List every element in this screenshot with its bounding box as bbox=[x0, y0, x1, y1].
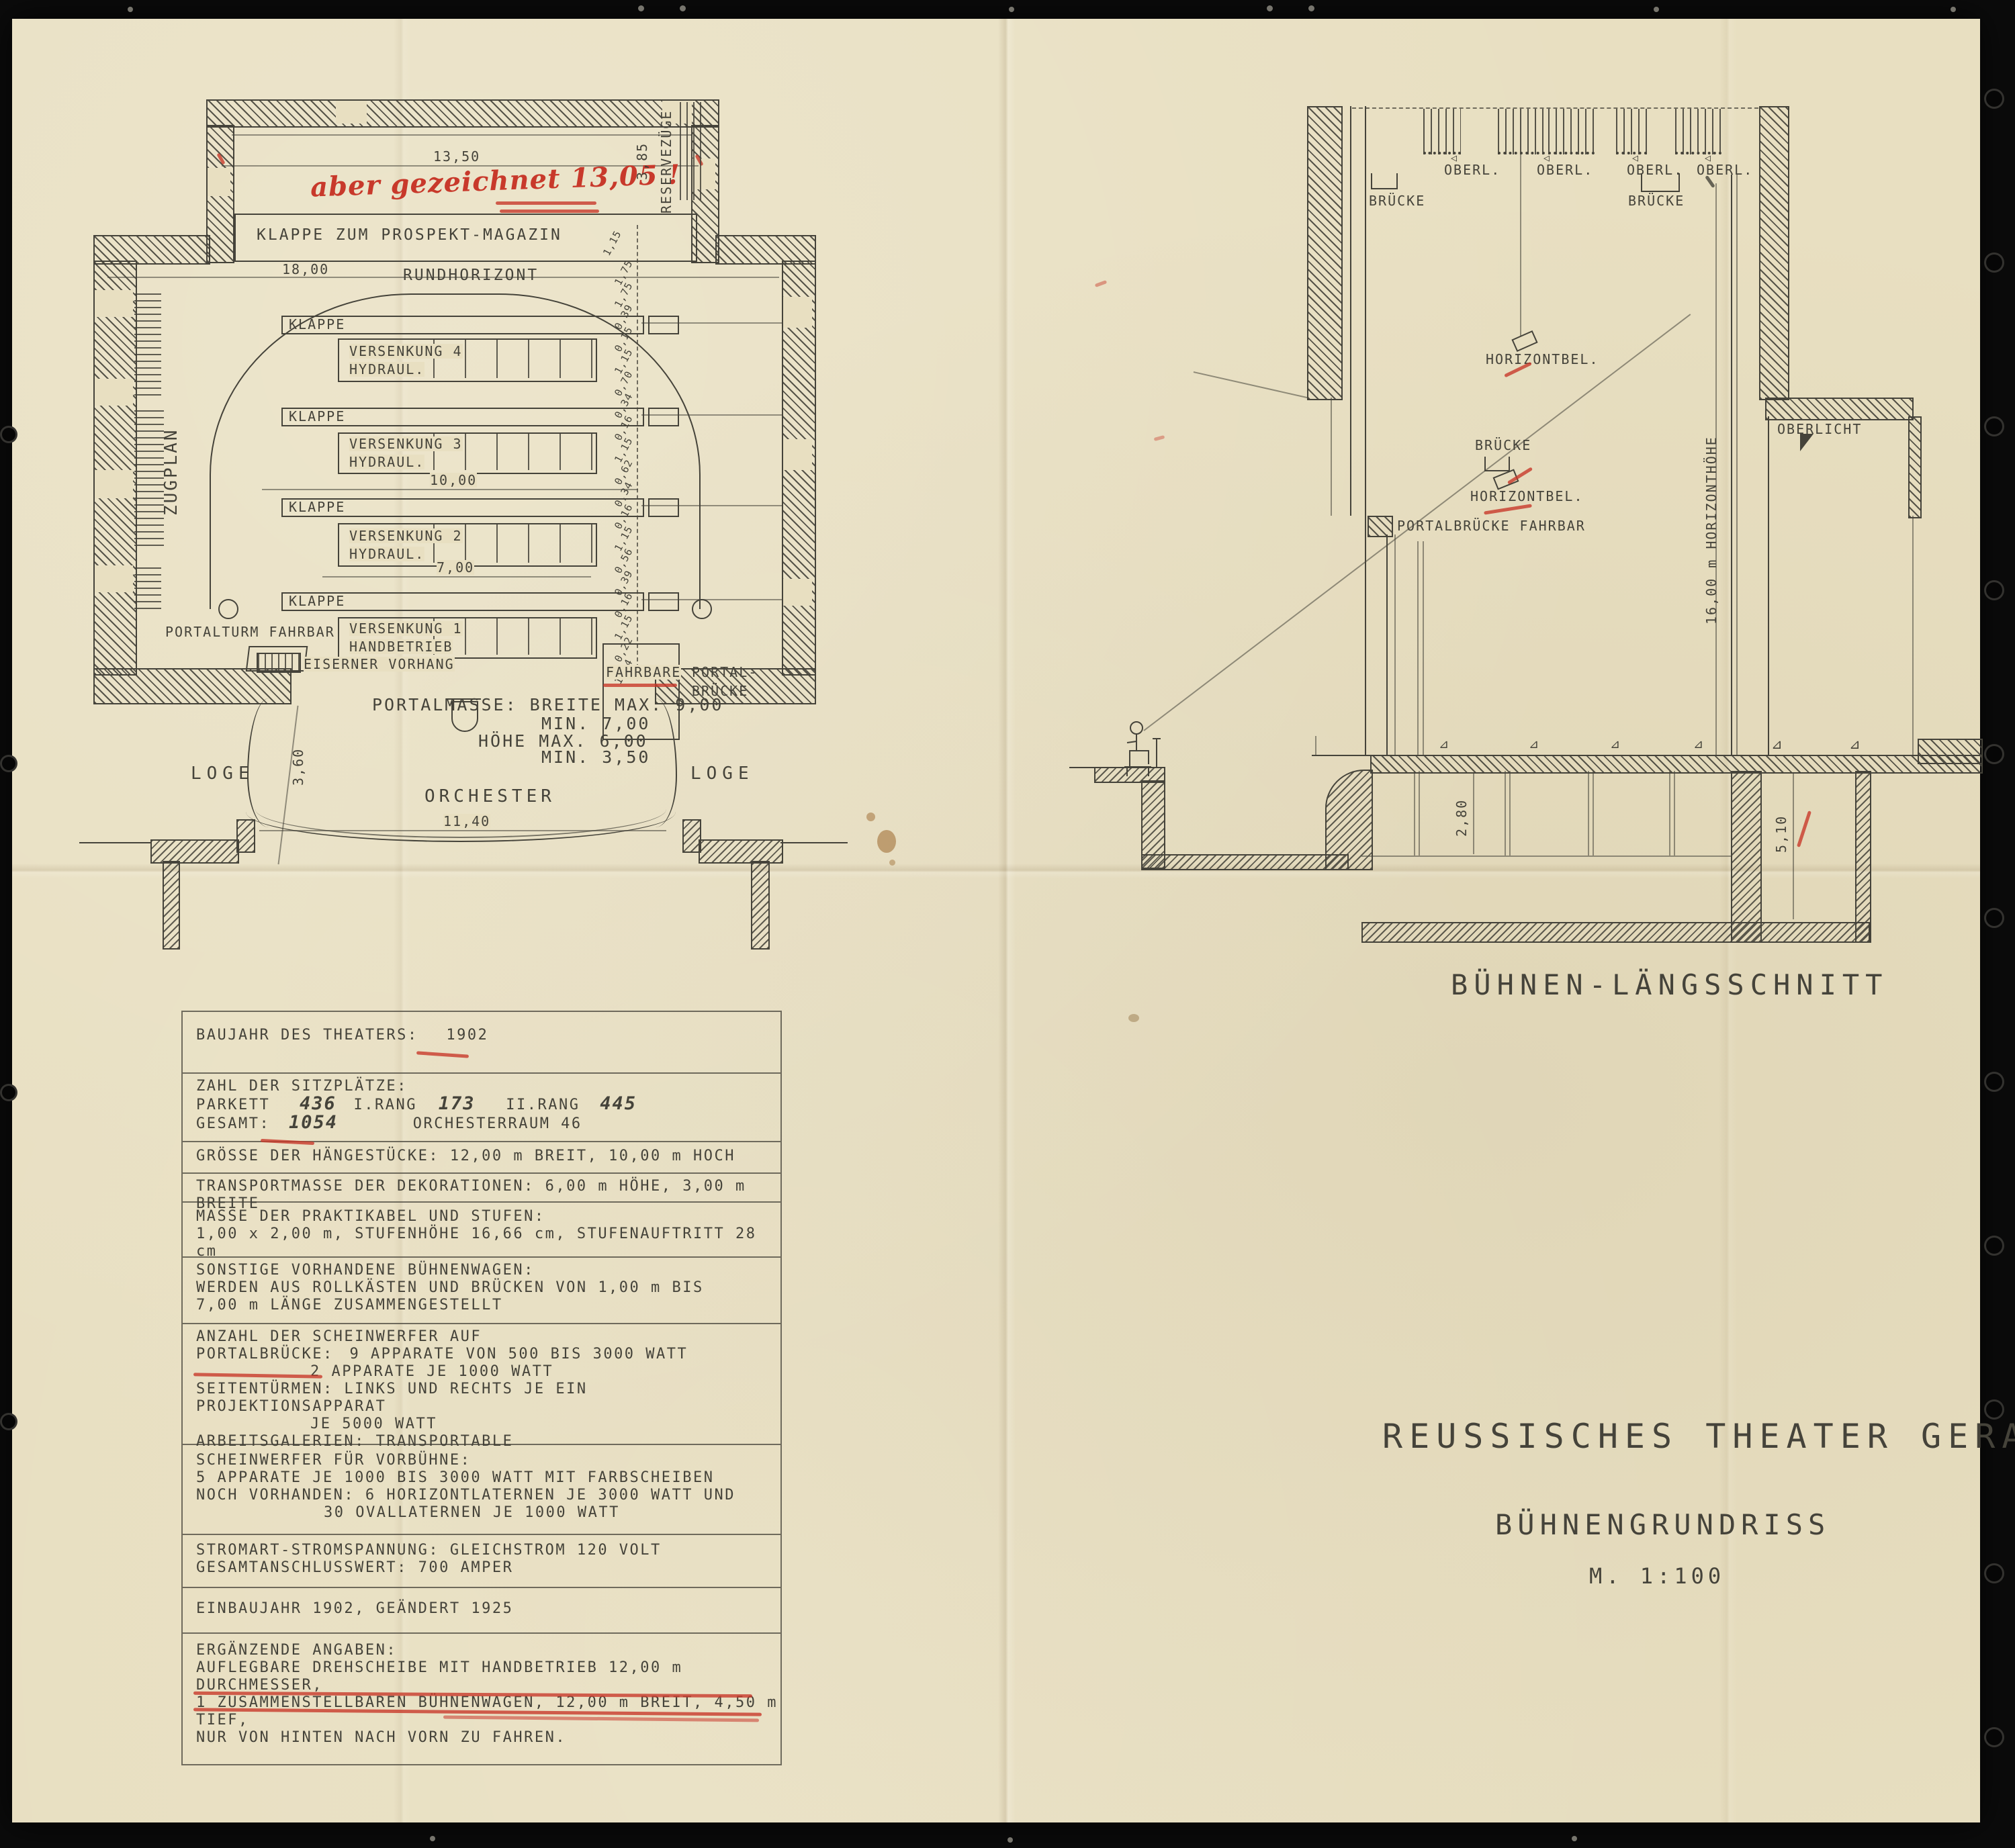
einbaujahr-text: EINBAUJAHR 1902, GEÄNDERT 1925 bbox=[196, 1600, 780, 1618]
label-klappe-4: KLAPPE bbox=[289, 594, 345, 608]
section-wall-line bbox=[1350, 106, 1351, 516]
dim-horizonthoehe: 16,00 m HORIZONTHÖHE bbox=[1703, 416, 1719, 625]
table-row-stromart: STROMART-STROMSPANNUNG: GLEICHSTROM 120 … bbox=[183, 1535, 780, 1588]
stromart-l2: GESAMTANSCHLUSSWERT: 700 AMPER bbox=[196, 1559, 780, 1577]
understage-mid-line bbox=[1361, 856, 1731, 857]
edge-dot bbox=[128, 7, 133, 12]
stage-floor bbox=[1370, 755, 1983, 774]
portal-column-line bbox=[1386, 535, 1388, 756]
edge-dot bbox=[430, 1836, 435, 1841]
label-hydraul-2: HYDRAUL. bbox=[349, 547, 424, 561]
balcony-column-right bbox=[751, 861, 770, 950]
table-row-sitzplaetze: ZAHL DER SITZPLÄTZE: PARKETT 436 I.RANG … bbox=[183, 1074, 780, 1142]
label-oberl-2: OBERL. bbox=[1537, 163, 1593, 177]
klappe-strip-2r bbox=[648, 408, 679, 426]
bridge-symbol bbox=[1641, 173, 1680, 192]
baujahr-value: 1902 bbox=[446, 1027, 488, 1044]
portal-tower-circle-left bbox=[218, 599, 238, 619]
fire-curtain-line bbox=[1417, 541, 1419, 755]
label-rundhorizont: RUNDHORIZONT bbox=[403, 267, 539, 284]
portalbruecke-value: 9 APPARATE VON 500 BIS 3000 WATT bbox=[349, 1346, 688, 1362]
section-wall-inner bbox=[1768, 416, 1769, 755]
dim-18-00: 18,00 bbox=[282, 262, 329, 277]
dim-7-00: 7,00 bbox=[437, 560, 474, 575]
label-portalmasse-4: MIN. 3,50 bbox=[541, 748, 650, 767]
audience-floor-line-right bbox=[780, 842, 848, 843]
rang1-label: I.RANG bbox=[354, 1097, 417, 1113]
iron-curtain-symbol bbox=[257, 653, 301, 673]
portal-column-line-2 bbox=[1394, 535, 1396, 756]
section-wall-line-2 bbox=[1331, 398, 1332, 516]
balcony-pier-left bbox=[236, 819, 255, 853]
bridge-symbol bbox=[1371, 173, 1398, 189]
pit-floor bbox=[1141, 854, 1349, 870]
ergaenzende-l1: ERGÄNZENDE ANGABEN: bbox=[196, 1642, 780, 1659]
edge-dot bbox=[1009, 7, 1014, 12]
gesamt-value: 1054 bbox=[289, 1112, 338, 1133]
plan-guide bbox=[641, 414, 782, 416]
label-bruecke-2: BRÜCKE bbox=[1628, 193, 1685, 208]
label-portalmasse-2: MIN. 7,00 bbox=[541, 714, 650, 733]
rang1-value: 173 bbox=[439, 1093, 476, 1114]
punch-hole bbox=[1984, 89, 2004, 109]
plan-wall-opening bbox=[95, 470, 133, 498]
dim-line-7-00 bbox=[322, 576, 591, 577]
label-oberlicht: OBERLICHT bbox=[1777, 422, 1862, 436]
title-theater: REUSSISCHES THEATER GERA bbox=[1382, 1418, 2015, 1455]
light-suspension-line bbox=[1520, 152, 1521, 336]
baujahr-label: BAUJAHR DES THEATERS: bbox=[196, 1027, 418, 1044]
edge-dot bbox=[638, 5, 644, 11]
punch-hole bbox=[1984, 908, 2004, 928]
punch-hole bbox=[1984, 1072, 2004, 1092]
dim-5-10: 5,10 bbox=[1773, 810, 1789, 853]
edge-dot bbox=[1654, 7, 1659, 12]
punch-hole bbox=[1984, 252, 2004, 273]
fly-bars bbox=[1423, 109, 1461, 154]
label-hydraul-3: HYDRAUL. bbox=[349, 455, 424, 469]
understage-wall-right bbox=[1855, 771, 1871, 943]
understage-post bbox=[1414, 771, 1415, 856]
fly-line-ticks bbox=[134, 565, 161, 609]
table-row-einbaujahr: EINBAUJAHR 1902, GEÄNDERT 1925 bbox=[183, 1588, 780, 1634]
label-hydraul-4: HYDRAUL. bbox=[349, 362, 424, 377]
dim-3-60: 3,60 bbox=[290, 739, 306, 786]
red-underline-fahrbare bbox=[603, 684, 677, 687]
cyclorama-line-2 bbox=[1736, 175, 1738, 755]
stain bbox=[1128, 1014, 1139, 1022]
stromart-l1: STROMART-STROMSPANNUNG: GLEICHSTROM 120 … bbox=[196, 1542, 780, 1559]
punch-hole bbox=[1984, 1727, 2004, 1747]
buehnenwagen-l1: SONSTIGE VORHANDENE BÜHNENWAGEN: bbox=[196, 1262, 780, 1279]
klappe-strip-1r bbox=[648, 316, 679, 334]
dim-line-10-00 bbox=[262, 489, 638, 490]
table-row-ergaenzende: ERGÄNZENDE ANGABEN: AUFLEGBARE DREHSCHEI… bbox=[183, 1634, 780, 1764]
parkett-label: PARKETT bbox=[196, 1097, 270, 1113]
label-portalturm: PORTALTURM FAHRBAR bbox=[165, 625, 335, 639]
buehnenwagen-l3: 7,00 m LÄNGE ZUSAMMENGESTELLT bbox=[196, 1297, 780, 1314]
portal-tower-circle-right bbox=[692, 599, 712, 619]
plan-wall-opening bbox=[95, 379, 133, 406]
plan-guide bbox=[641, 599, 782, 600]
label-loge-left: LOGE bbox=[191, 764, 255, 784]
buehnenwagen-l2: WERDEN AUS ROLLKÄSTEN UND BRÜCKEN VON 1,… bbox=[196, 1279, 780, 1297]
dim-chain-line bbox=[637, 225, 638, 668]
plan-wall-left bbox=[93, 261, 137, 676]
gesamt-label: GESAMT: bbox=[196, 1115, 270, 1132]
red-underline bbox=[496, 201, 596, 205]
red-underline bbox=[500, 210, 599, 213]
rang2-value: 445 bbox=[600, 1093, 637, 1114]
punch-hole bbox=[1984, 1399, 2004, 1420]
label-zugplan: ZUGPLAN bbox=[161, 395, 181, 516]
orchesterraum-label: ORCHESTERRAUM 46 bbox=[413, 1115, 582, 1132]
ergaenzende-l4: NUR VON HINTEN NACH VORN ZU FAHREN. bbox=[196, 1729, 780, 1747]
fold-crease-horizontal bbox=[12, 864, 1980, 878]
basement-slab bbox=[1361, 922, 1870, 943]
edge-dot bbox=[1951, 7, 1956, 12]
portal-bridge-section bbox=[1368, 516, 1393, 537]
section-proscenium-line bbox=[1365, 106, 1366, 755]
praktikabel-l2: 1,00 x 2,00 m, STUFENHÖHE 16,66 cm, STUF… bbox=[196, 1226, 780, 1260]
table-row-transportmasse: TRANSPORTMASSE DER DEKORATIONEN: 6,00 m … bbox=[183, 1174, 780, 1203]
label-loge-right: LOGE bbox=[690, 764, 754, 784]
stage-prop-icon: ⊿ bbox=[1529, 737, 1539, 751]
parkett-value: 436 bbox=[300, 1093, 337, 1114]
balcony-column-left bbox=[163, 861, 180, 950]
table-row-vorbuehne: SCHEINWERFER FÜR VORBÜHNE: 5 APPARATE JE… bbox=[183, 1445, 780, 1535]
portalbruecke-label: PORTALBRÜCKE: bbox=[196, 1346, 334, 1362]
balcony-slab-right bbox=[699, 839, 783, 864]
punch-hole bbox=[0, 755, 17, 772]
table-row-haengestuecke: GRÖSSE DER HÄNGESTÜCKE: 12,00 m BREIT, 1… bbox=[183, 1142, 780, 1174]
label-reservezuege: RESERVEZÜGE bbox=[658, 106, 674, 214]
plan-wall-opening bbox=[783, 439, 812, 470]
label-horizontbel-1: HORIZONTBEL. bbox=[1486, 352, 1599, 367]
title-scale: M. 1:100 bbox=[1589, 1565, 1725, 1588]
plan-line bbox=[232, 134, 691, 136]
vorbuehne-l1: SCHEINWERFER FÜR VORBÜHNE: bbox=[196, 1452, 780, 1469]
dim-line-2-80 bbox=[1473, 772, 1474, 854]
stain bbox=[866, 813, 875, 821]
label-versenkung-1: VERSENKUNG 1 bbox=[349, 621, 463, 636]
haengestuecke-text: GRÖSSE DER HÄNGESTÜCKE: 12,00 m BREIT, 1… bbox=[196, 1148, 780, 1165]
section-caption: BÜHNEN-LÄNGSSCHNITT bbox=[1451, 970, 1888, 1001]
understage-post bbox=[1669, 771, 1670, 856]
label-portalbruecke-fahrbar: PORTALBRÜCKE FAHRBAR bbox=[1397, 518, 1586, 533]
ergaenzende-l2: AUFLEGBARE DREHSCHEIBE MIT HANDBETRIEB 1… bbox=[196, 1659, 780, 1694]
edge-dot bbox=[680, 5, 686, 11]
title-drawing-type: BÜHNENGRUNDRISS bbox=[1495, 1510, 1830, 1540]
fire-curtain-line-2 bbox=[1423, 541, 1424, 755]
stage-prop-icon: ⊿ bbox=[1693, 737, 1703, 751]
dim-line-5-10 bbox=[1793, 772, 1794, 919]
dim-13-50: 13,50 bbox=[433, 149, 480, 164]
dim-10-00: 10,00 bbox=[430, 473, 477, 488]
label-oberl-1: OBERL. bbox=[1444, 163, 1501, 177]
label-klappe-3: KLAPPE bbox=[289, 500, 345, 514]
label-bruecke-1: BRÜCKE bbox=[1369, 193, 1425, 208]
punch-hole bbox=[1984, 580, 2004, 600]
stage-prop-icon: ⊿ bbox=[1610, 737, 1620, 751]
punch-hole bbox=[1984, 744, 2004, 764]
label-versenkung-3: VERSENKUNG 3 bbox=[349, 436, 463, 451]
plan-wall-top bbox=[206, 99, 719, 128]
edge-dot bbox=[1267, 5, 1273, 11]
dim-3-85: 3,85 bbox=[634, 137, 650, 180]
punch-hole bbox=[1984, 416, 2004, 436]
understage-post bbox=[1509, 771, 1511, 856]
audience-floor-line bbox=[79, 842, 150, 843]
punch-hole bbox=[0, 426, 17, 443]
plan-guide bbox=[641, 505, 782, 506]
label-versenkung-2: VERSENKUNG 2 bbox=[349, 528, 463, 543]
section-wall-right bbox=[1759, 106, 1789, 400]
plan-wall-opening bbox=[95, 290, 133, 317]
cyclorama-line bbox=[1731, 175, 1732, 755]
klappe-strip-4r bbox=[648, 592, 679, 611]
fly-bars bbox=[1498, 109, 1545, 154]
reserve-rope-ticks bbox=[680, 102, 707, 200]
section-wall-outer-low bbox=[1912, 516, 1914, 755]
section-wall-left bbox=[1307, 106, 1343, 400]
scheinwerfer-l4: SEITENTÜRMEN: LINKS UND RECHTS JE EIN PR… bbox=[196, 1381, 780, 1416]
oberlicht-arrow-icon bbox=[1800, 434, 1813, 451]
fly-line-ticks bbox=[134, 408, 164, 546]
label-eiserner-vorhang: EISERNER VORHANG bbox=[304, 657, 455, 672]
punch-hole bbox=[0, 1084, 17, 1101]
bridge-symbol bbox=[1484, 457, 1510, 471]
stage-prop-icon: ⊿ bbox=[1849, 736, 1861, 752]
label-bruecke-3: BRÜCKE bbox=[1475, 438, 1531, 453]
fold-crease-vertical bbox=[998, 19, 1016, 1822]
label-klappe-2: KLAPPE bbox=[289, 409, 345, 424]
understage-post bbox=[1674, 771, 1675, 856]
label-horizontbel-2: HORIZONTBEL. bbox=[1470, 489, 1584, 504]
technical-data-table: BAUJAHR DES THEATERS: 1902 ZAHL DER SITZ… bbox=[181, 1011, 782, 1765]
vorbuehne-l2: 5 APPARATE JE 1000 BIS 3000 WATT MIT FAR… bbox=[196, 1469, 780, 1487]
understage-wall bbox=[1731, 771, 1762, 943]
punch-hole bbox=[1984, 1236, 2004, 1256]
section-wall-oberlicht bbox=[1908, 416, 1922, 518]
scheinwerfer-l3: 2 APPARATE JE 1000 WATT bbox=[310, 1363, 780, 1381]
stage-prop-icon: ⊿ bbox=[1771, 736, 1783, 752]
plan-wall-opening bbox=[95, 565, 133, 592]
label-portal-1: PORTAL- bbox=[692, 665, 758, 680]
stain bbox=[877, 830, 896, 853]
praktikabel-l1: MASSE DER PRAKTIKABEL UND STUFEN: bbox=[196, 1208, 780, 1226]
dim-2-80: 2,80 bbox=[1453, 790, 1470, 837]
fly-bars bbox=[1675, 109, 1721, 154]
understage-post bbox=[1505, 771, 1506, 856]
scanned-theatre-blueprint: { "plan": { "dim_13_50": "13,50", "red_n… bbox=[0, 0, 2015, 1848]
understage-post bbox=[1593, 771, 1594, 856]
fly-line-ticks bbox=[134, 289, 161, 396]
edge-dot bbox=[1572, 1836, 1577, 1841]
plan-wall-opening bbox=[783, 579, 812, 606]
label-oberl-4: OBERL. bbox=[1697, 163, 1753, 177]
rang2-label: II.RANG bbox=[506, 1097, 580, 1113]
sitzplaetze-header: ZAHL DER SITZPLÄTZE: bbox=[196, 1078, 780, 1095]
music-stand bbox=[1315, 736, 1316, 755]
plan-guide bbox=[641, 322, 782, 324]
balcony-slab-left bbox=[150, 839, 239, 864]
edge-dot bbox=[1007, 1837, 1013, 1843]
scheinwerfer-l5: JE 5000 WATT bbox=[310, 1416, 780, 1433]
plan-wall-opening bbox=[783, 297, 812, 328]
fly-bars bbox=[1616, 109, 1647, 154]
label-klappe-1: KLAPPE bbox=[289, 317, 345, 332]
label-handbetrieb: HANDBETRIEB bbox=[349, 639, 453, 654]
plan-wall-opening bbox=[336, 101, 367, 124]
label-portalmasse-1: PORTALMASSE: BREITE MAX. 9,00 bbox=[372, 696, 724, 714]
understage-post bbox=[1419, 771, 1420, 856]
stain bbox=[889, 860, 895, 866]
label-versenkung-4: VERSENKUNG 4 bbox=[349, 344, 463, 359]
understage-post bbox=[1588, 771, 1589, 856]
vorbuehne-l3: NOCH VORHANDEN: 6 HORIZONTLATERNEN JE 30… bbox=[196, 1487, 780, 1504]
fly-bars bbox=[1548, 109, 1595, 154]
edge-dot bbox=[1308, 5, 1314, 11]
table-row-baujahr: BAUJAHR DES THEATERS: 1902 bbox=[183, 1012, 780, 1074]
table-row-buehnenwagen: SONSTIGE VORHANDENE BÜHNENWAGEN: WERDEN … bbox=[183, 1258, 780, 1324]
klappe-strip-3r bbox=[648, 498, 679, 517]
vorbuehne-l4: 30 OVALLATERNEN JE 1000 WATT bbox=[324, 1504, 780, 1522]
label-fahrbare: FAHRBARE bbox=[606, 665, 681, 680]
orchestra-pit-curve-inner bbox=[255, 780, 666, 838]
label-klappe-prospekt: KLAPPE ZUM PROSPEKT-MAGAZIN bbox=[257, 227, 562, 244]
apron-edge bbox=[1312, 755, 1372, 756]
plan-wall-opening bbox=[208, 168, 230, 196]
section-roof-band bbox=[1765, 398, 1914, 420]
punch-hole bbox=[1984, 1563, 2004, 1583]
audience-floor-edge bbox=[1069, 767, 1096, 768]
table-row-scheinwerfer-portal: ANZAHL DER SCHEINWERFER AUF PORTALBRÜCKE… bbox=[183, 1324, 780, 1445]
plan-wall-bottom-left bbox=[93, 668, 292, 704]
punch-hole bbox=[0, 1413, 17, 1430]
scheinwerfer-l1: ANZAHL DER SCHEINWERFER AUF bbox=[196, 1328, 780, 1346]
table-row-praktikabel: MASSE DER PRAKTIKABEL UND STUFEN: 1,00 x… bbox=[183, 1203, 780, 1258]
stage-prop-icon: ⊿ bbox=[1439, 737, 1449, 751]
